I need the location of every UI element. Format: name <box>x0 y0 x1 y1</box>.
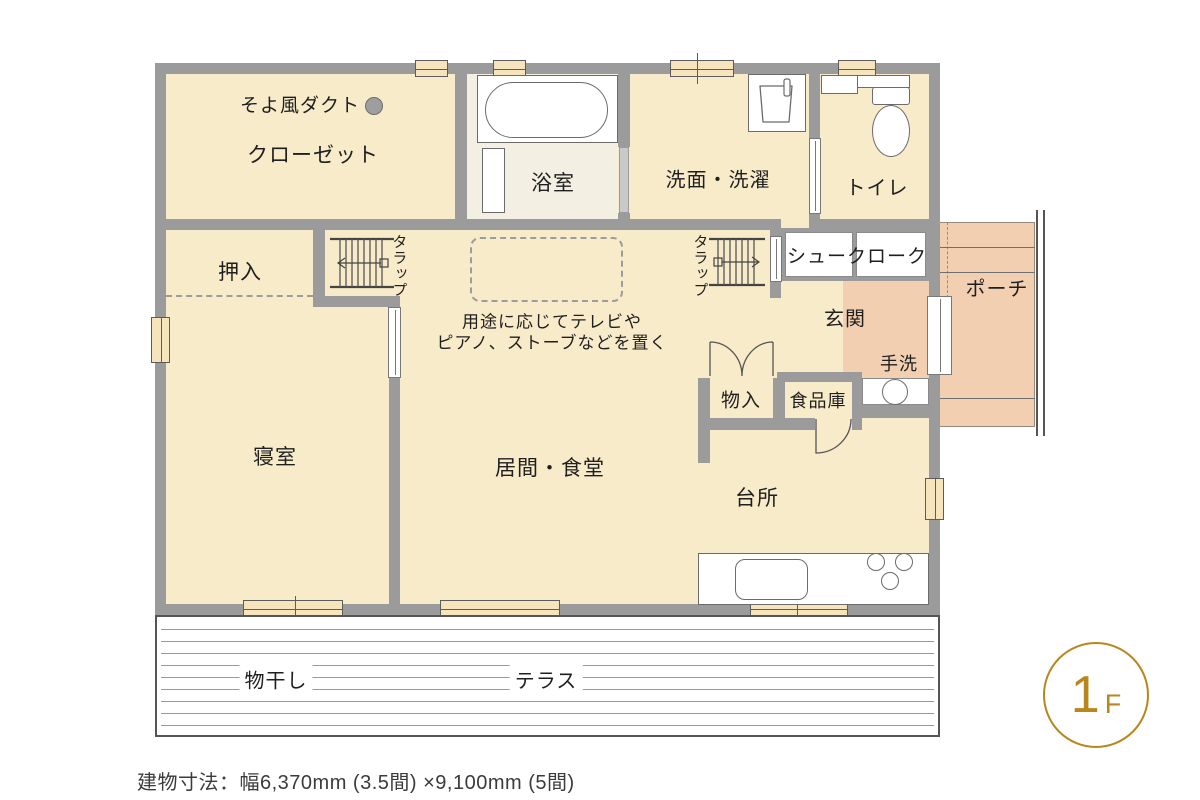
pantry-door-arc-icon <box>813 418 854 457</box>
wall <box>773 378 785 418</box>
window-mullion <box>697 53 698 84</box>
window <box>925 478 944 520</box>
window <box>151 317 170 363</box>
wall <box>770 219 781 236</box>
note-line2: ピアノ、ストーブなどを置く <box>436 329 667 354</box>
bedroom-sliding-door <box>388 307 401 378</box>
stove-burner <box>881 572 899 590</box>
floor-badge-number: 1 <box>1071 669 1100 721</box>
entrance-porch-door <box>927 296 952 375</box>
label-ladder: タラップ <box>690 234 711 298</box>
stove-burner <box>895 553 913 571</box>
label-porch: ポーチ <box>966 273 1029 302</box>
wall <box>809 74 820 138</box>
wall <box>777 372 862 382</box>
label-toilet: トイレ <box>846 172 909 201</box>
deck-plank-line <box>161 653 934 654</box>
porch-railing <box>1036 210 1045 436</box>
label-pantry: 食品庫 <box>790 387 847 413</box>
handwash-basin <box>882 379 908 405</box>
label-entrance: 玄関 <box>824 303 866 332</box>
ladder-icon <box>706 233 768 291</box>
deck-plank-line <box>161 641 934 642</box>
window <box>415 60 448 77</box>
wall <box>698 430 710 463</box>
floor-plan: そよ風ダクト クローゼット 浴室 洗面・洗濯 トイレ 押入 タラップ タラップ … <box>0 0 1200 800</box>
wall <box>929 63 940 298</box>
deck-plank-line <box>161 701 934 702</box>
wall <box>698 378 710 418</box>
bathtub <box>485 82 608 138</box>
porch-floor <box>940 222 1035 427</box>
label-kitchen: 台所 <box>735 482 779 512</box>
toilet-tank <box>872 87 910 105</box>
wall <box>155 63 940 74</box>
hall-pocket-door <box>770 236 782 282</box>
wall <box>698 418 815 430</box>
deck-plank-line <box>161 713 934 714</box>
wall <box>166 219 630 230</box>
label-handwash: 手洗 <box>880 350 918 376</box>
bath-vanity <box>482 148 505 213</box>
wall <box>630 219 771 230</box>
breeze-duct-icon <box>365 97 383 115</box>
toilet-sliding-door <box>809 138 821 214</box>
label-bedroom: 寝室 <box>253 441 297 471</box>
dimension-caption: 建物寸法：幅6,370mm (3.5間) ×9,100mm (5間) <box>137 766 575 795</box>
porch-dashed-line <box>947 222 948 298</box>
storage-french-doors-icon <box>708 340 775 380</box>
deck-plank-line <box>161 725 934 726</box>
porch-step-line <box>940 398 1035 399</box>
wall <box>618 74 630 147</box>
wall <box>313 296 400 307</box>
label-ladder: タラップ <box>389 234 410 298</box>
label-breeze-duct: そよ風ダクト <box>240 91 360 118</box>
label-drying: 物干し <box>240 664 313 695</box>
wall <box>862 405 929 418</box>
deck-plank-line <box>161 629 934 630</box>
wall <box>389 378 400 604</box>
wall <box>770 282 781 298</box>
bathroom-sliding-door <box>619 147 629 213</box>
toilet-bowl <box>872 105 910 157</box>
wall <box>618 213 630 230</box>
kitchen-sink <box>735 559 808 600</box>
label-washroom: 洗面・洗濯 <box>666 164 771 193</box>
furniture-placement-area <box>470 237 623 302</box>
wall <box>313 230 325 296</box>
ladder-icon <box>326 233 398 293</box>
floor-badge-suffix: F <box>1105 691 1122 718</box>
oshiire-open-boundary <box>166 295 313 297</box>
washbasin-icon <box>748 74 806 132</box>
label-oshiire: 押入 <box>218 256 262 286</box>
wall <box>455 74 467 219</box>
stove-burner <box>867 553 885 571</box>
label-shoe-cloak: シュークローク <box>787 242 927 269</box>
label-bath: 浴室 <box>531 167 575 197</box>
label-storage: 物入 <box>721 386 761 413</box>
label-closet: クローゼット <box>247 139 379 169</box>
label-terrace: テラス <box>510 664 583 695</box>
floor-badge: 1 F <box>1043 642 1149 748</box>
window <box>670 60 734 77</box>
toilet-shelf <box>821 75 858 94</box>
label-living-dining: 居間・食堂 <box>495 452 605 482</box>
porch-step-line <box>940 247 1035 248</box>
